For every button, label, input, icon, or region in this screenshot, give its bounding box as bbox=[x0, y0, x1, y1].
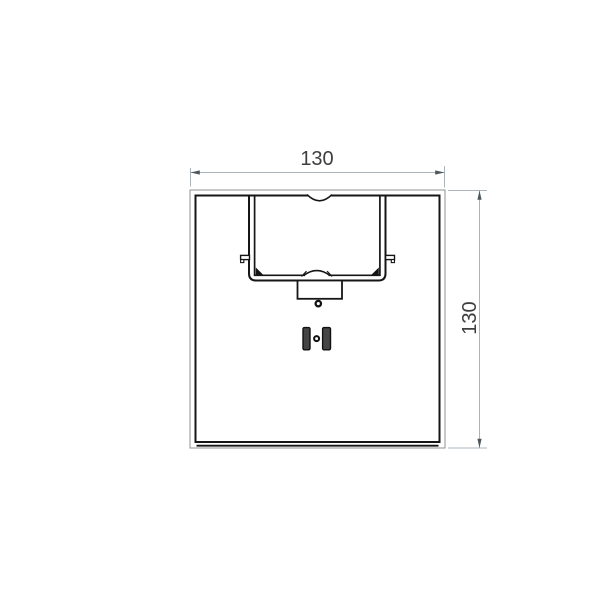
width-arrow-right bbox=[435, 170, 444, 174]
clip-left-tail bbox=[241, 260, 244, 263]
channel-outer-wall bbox=[249, 197, 386, 281]
center-hole bbox=[314, 336, 319, 341]
clip-right bbox=[386, 255, 395, 262]
clip-right-tail bbox=[391, 260, 394, 263]
clip-right-bar bbox=[386, 255, 395, 259]
clip-left-bar bbox=[241, 255, 250, 259]
mounting-tab bbox=[298, 281, 343, 299]
bottom-notch-mask bbox=[305, 274, 329, 277]
height-dimension-value: 130 bbox=[460, 301, 480, 334]
cable-channel bbox=[241, 193, 395, 299]
slot-right bbox=[323, 328, 331, 350]
drawing-canvas: 130 130 bbox=[0, 0, 600, 600]
center-features bbox=[303, 301, 331, 350]
top-notch-mask bbox=[308, 193, 331, 198]
height-arrow-bottom bbox=[477, 439, 481, 448]
width-dimension-value: 130 bbox=[300, 149, 333, 169]
technical-drawing bbox=[0, 0, 600, 600]
width-arrow-left bbox=[191, 170, 200, 174]
slot-left bbox=[303, 328, 310, 350]
screw-hole bbox=[316, 301, 321, 306]
height-arrow-top bbox=[477, 191, 481, 200]
